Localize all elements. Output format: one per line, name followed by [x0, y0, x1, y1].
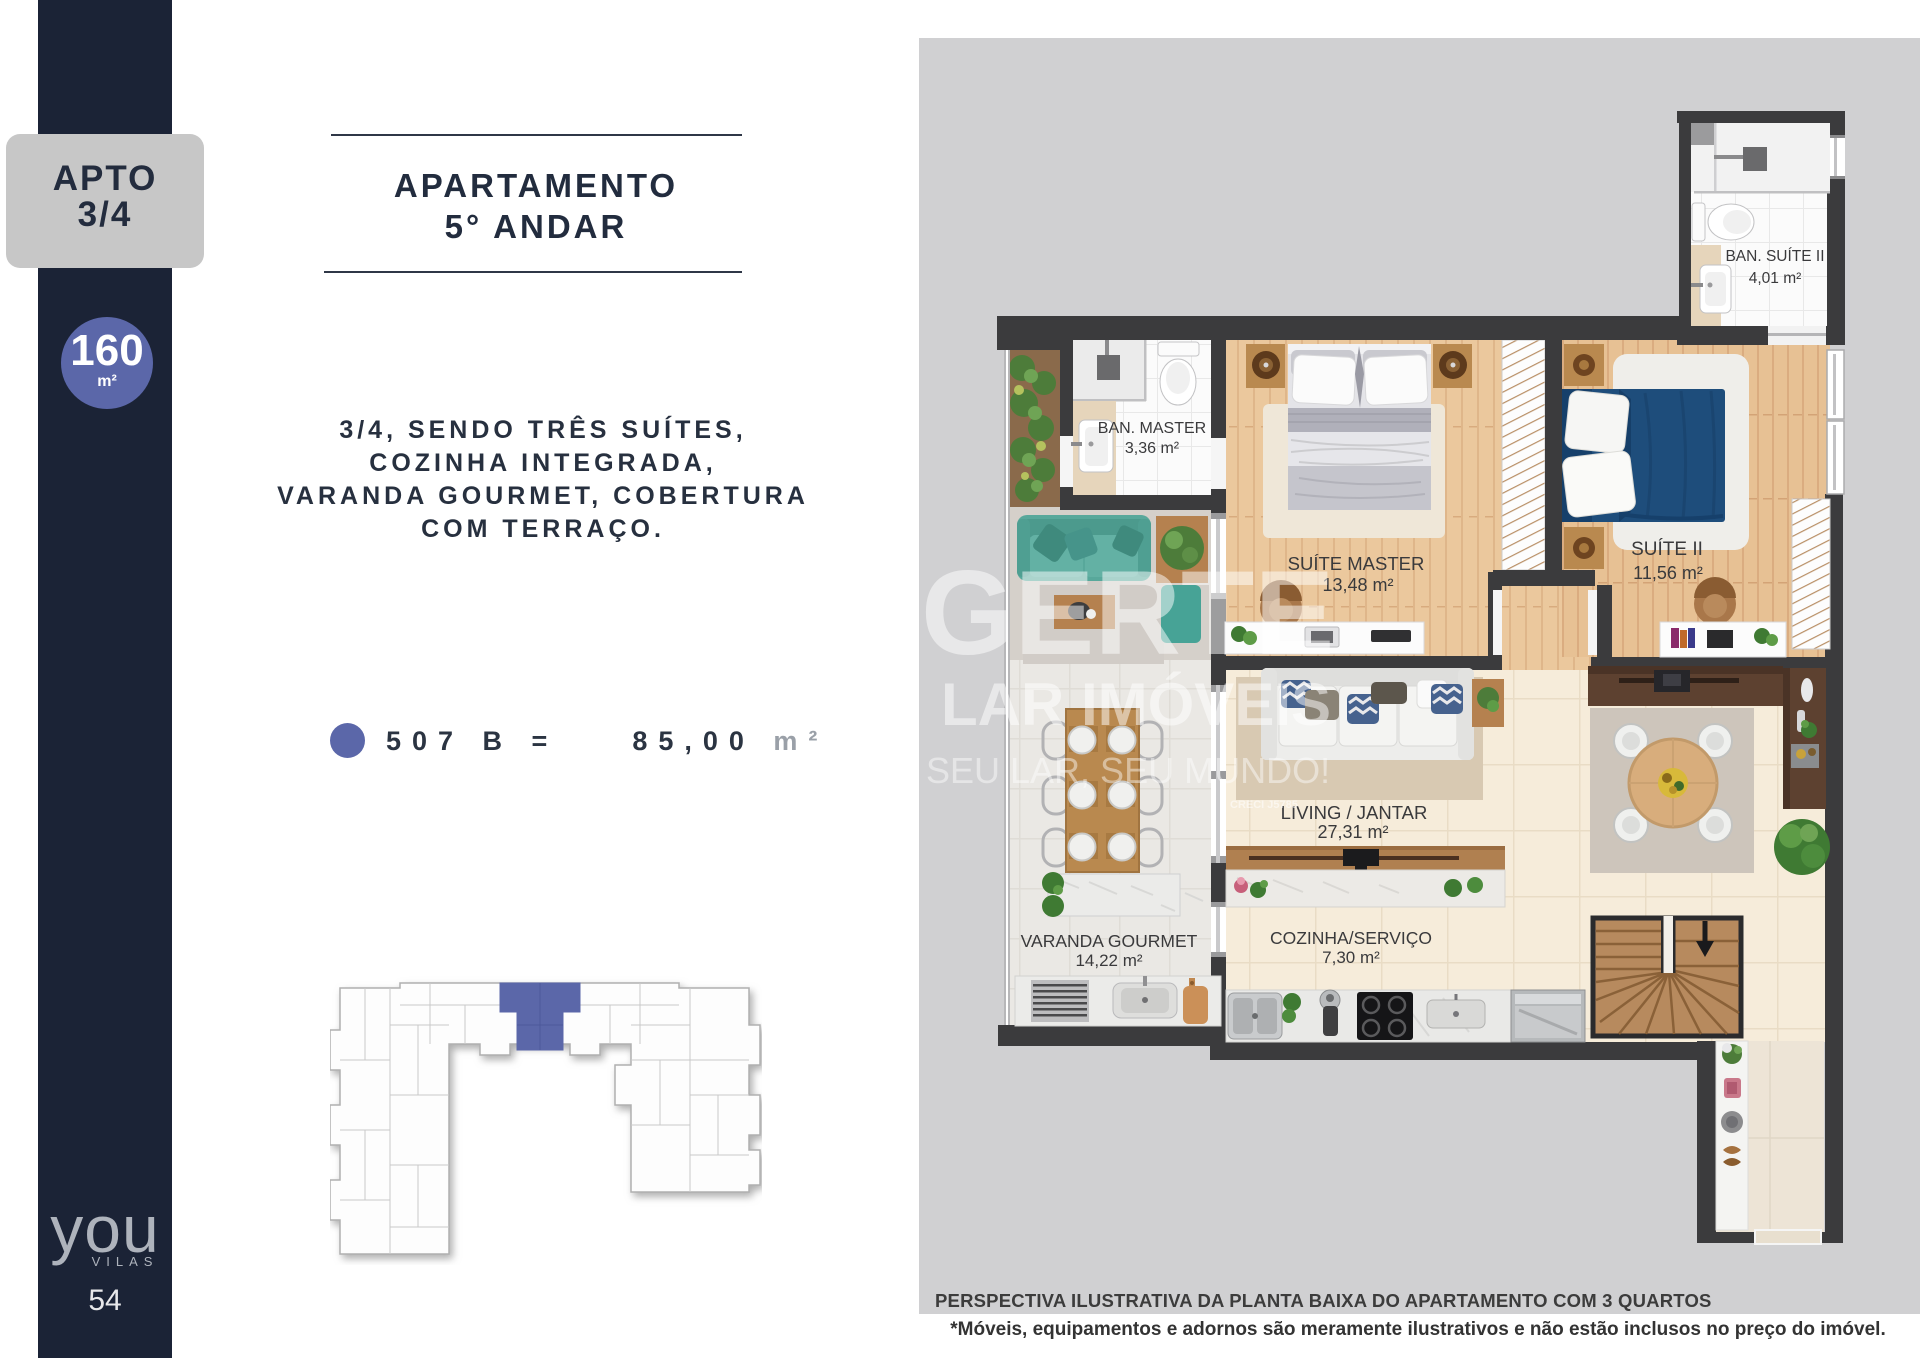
svg-text:LIVING / JANTAR: LIVING / JANTAR	[1281, 802, 1428, 823]
svg-text:11,56 m²: 11,56 m²	[1633, 563, 1703, 583]
svg-text:COZINHA/SERVIÇO: COZINHA/SERVIÇO	[1270, 928, 1432, 948]
svg-text:3,36 m²: 3,36 m²	[1125, 440, 1180, 457]
svg-text:14,22 m²: 14,22 m²	[1075, 951, 1142, 970]
svg-text:VARANDA GOURMET: VARANDA GOURMET	[1021, 931, 1198, 951]
svg-text:7,30 m²: 7,30 m²	[1322, 948, 1380, 967]
svg-text:BAN. MASTER: BAN. MASTER	[1098, 420, 1206, 437]
svg-text:4,01 m²: 4,01 m²	[1749, 270, 1802, 287]
svg-text:27,31 m²: 27,31 m²	[1317, 822, 1388, 842]
svg-text:BAN. SUÍTE II: BAN. SUÍTE II	[1725, 248, 1824, 265]
svg-text:SUÍTE II: SUÍTE II	[1631, 539, 1703, 560]
